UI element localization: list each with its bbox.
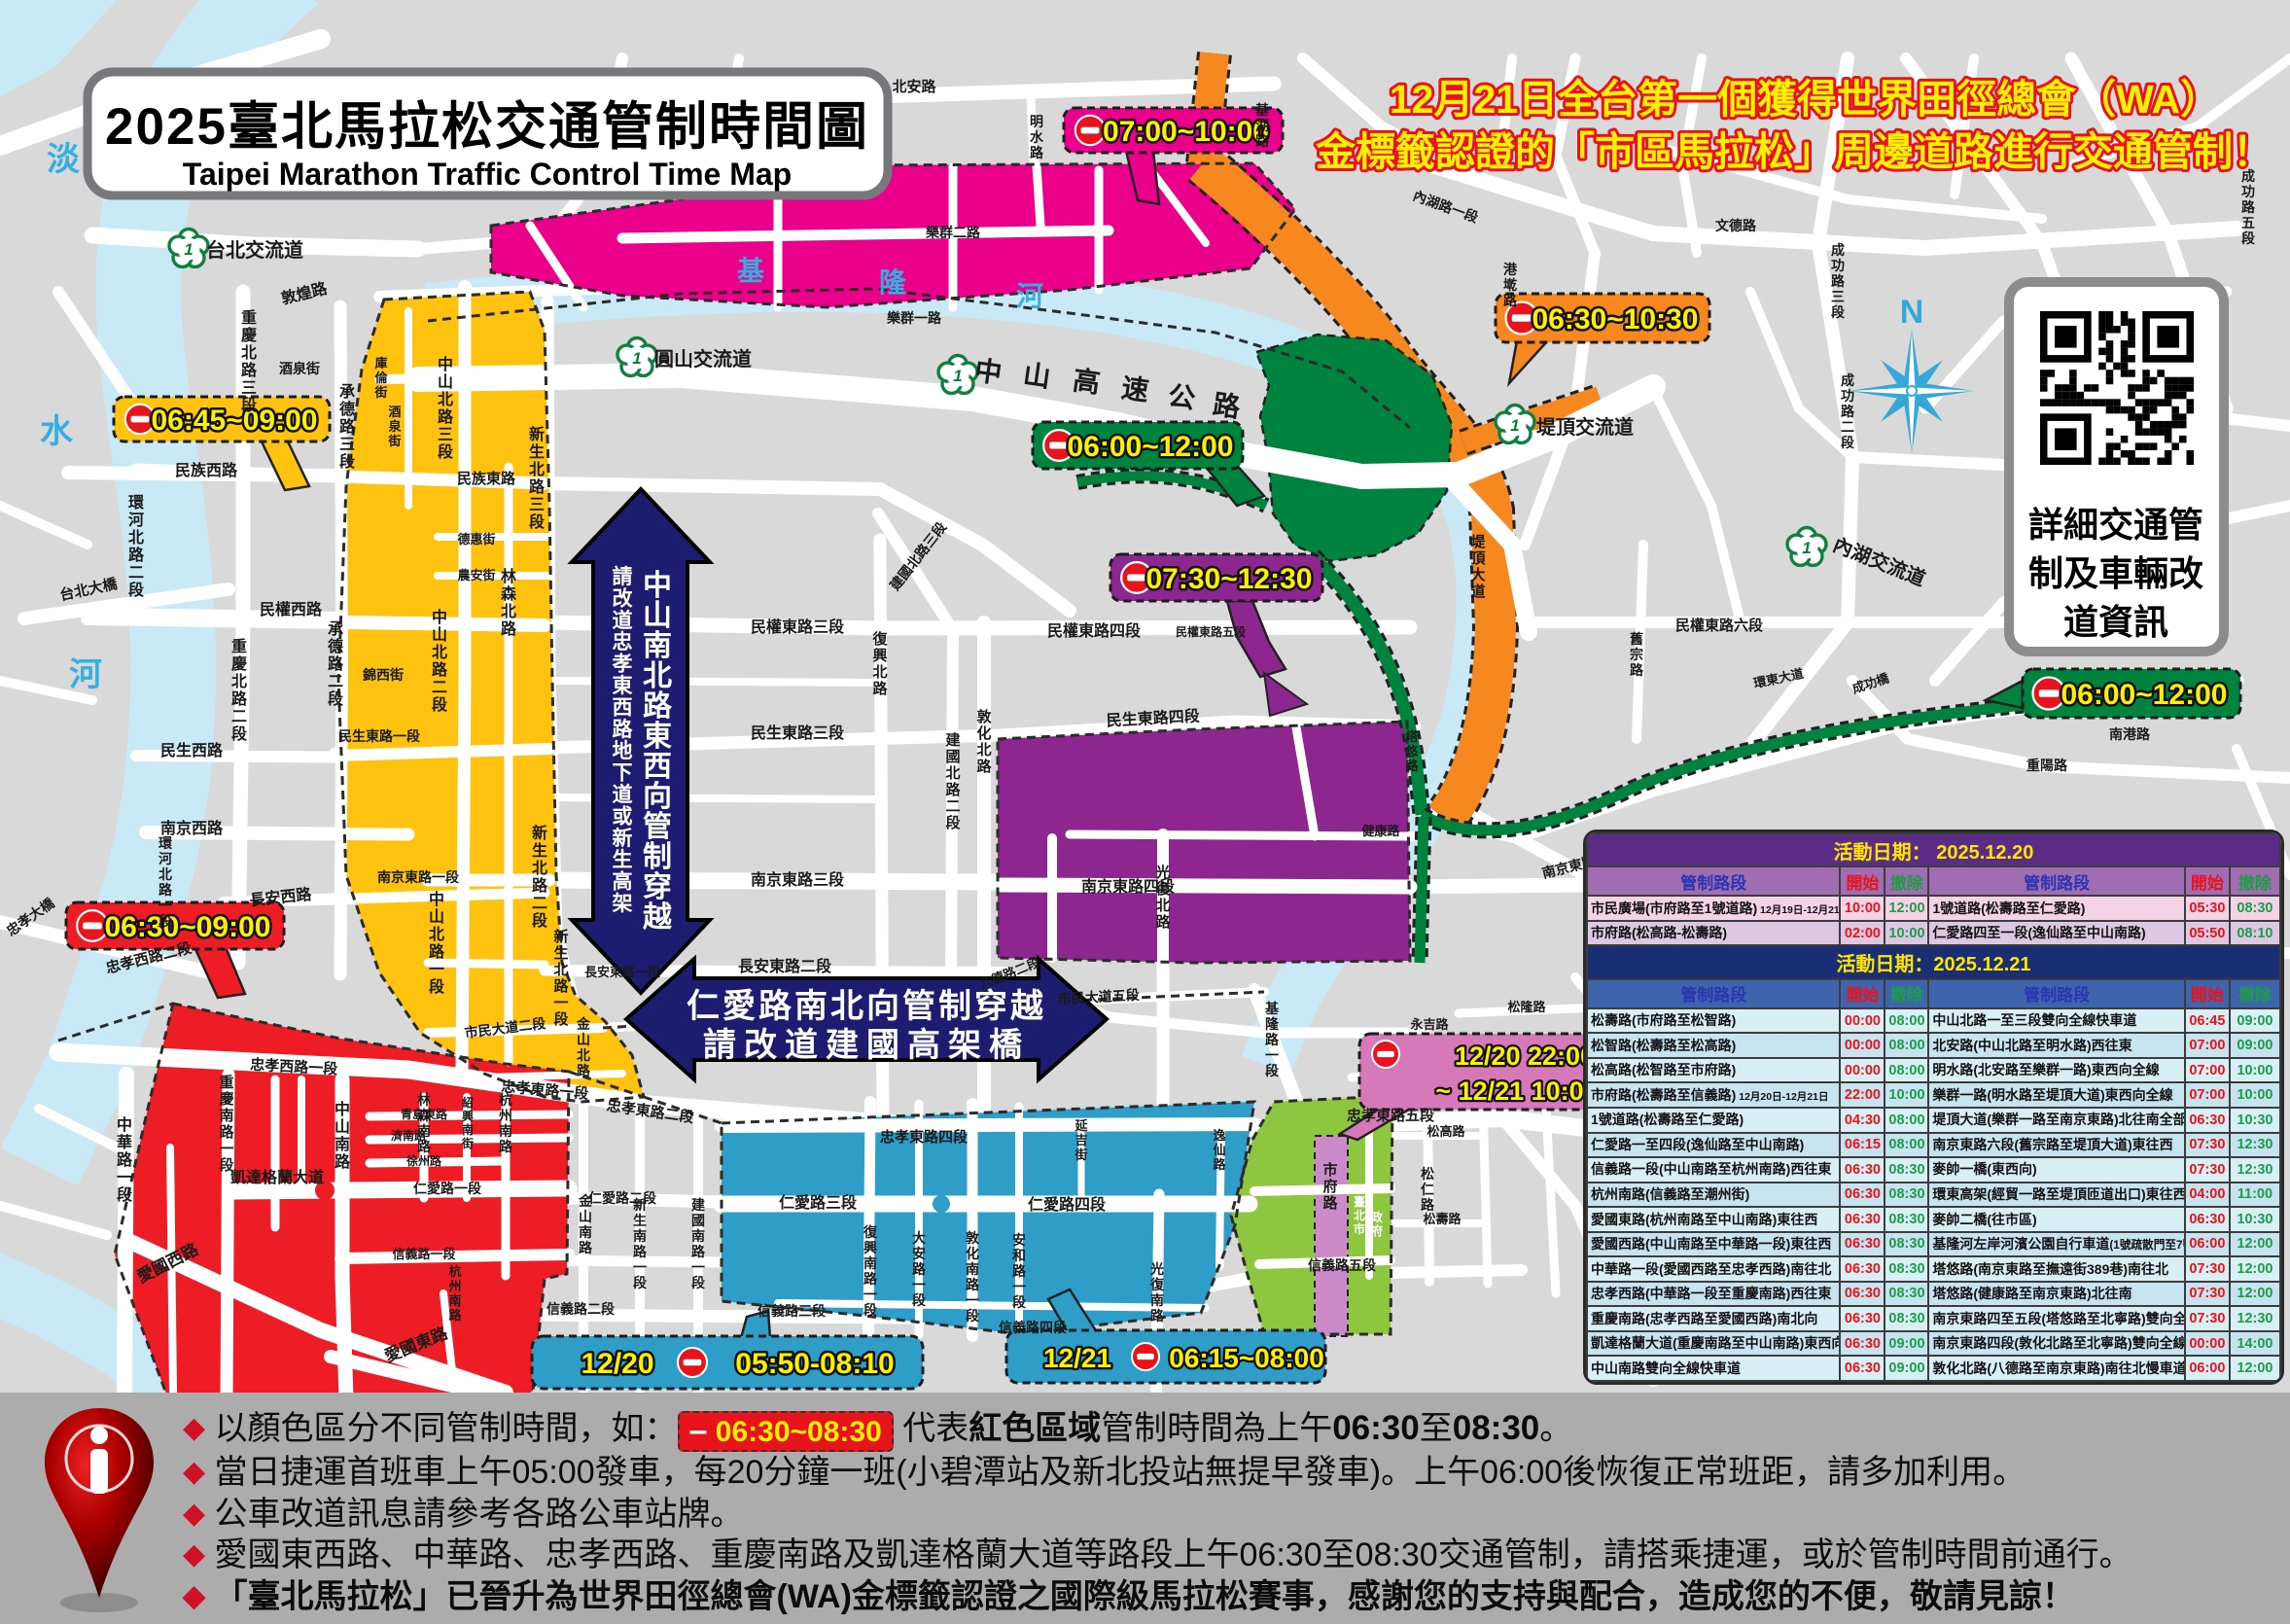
- svg-text:12/20 22:00: 12/20 22:00: [1455, 1041, 1595, 1071]
- svg-text:金山北路: 金山北路: [576, 1016, 591, 1078]
- svg-text:光復南路: 光復南路: [1149, 1261, 1165, 1324]
- svg-text:新生北路三段: 新生北路三段: [529, 425, 546, 531]
- svg-text:復興南路一段: 復興南路一段: [863, 1224, 878, 1318]
- svg-text:新生北路一段: 新生北路一段: [553, 928, 569, 1028]
- svg-text:信義路三段: 信義路三段: [757, 1303, 826, 1319]
- svg-text:松仁路: 松仁路: [1421, 1166, 1435, 1213]
- svg-text:德惠街: 德惠街: [457, 532, 495, 547]
- svg-text:忠孝東路五段: 忠孝東路五段: [1347, 1107, 1434, 1124]
- svg-text:光復北路: 光復北路: [1154, 864, 1171, 931]
- svg-text:仁愛路四段: 仁愛路四段: [1028, 1195, 1107, 1214]
- svg-text:1: 1: [184, 240, 193, 259]
- svg-text:公: 公: [1166, 380, 1197, 414]
- svg-text:明水路: 明水路: [1030, 114, 1044, 160]
- svg-text:逸仙路: 逸仙路: [1213, 1128, 1226, 1172]
- svg-text:金標籤認證的「市區馬拉松」周邊道路進行交通管制！: 金標籤認證的「市區馬拉松」周邊道路進行交通管制！: [1315, 129, 2272, 174]
- svg-text:Taipei Marathon Traffic Contro: Taipei Marathon Traffic Control Time Map: [183, 157, 792, 192]
- svg-text:民族西路: 民族西路: [175, 461, 238, 479]
- svg-text:建國南路一段: 建國南路一段: [691, 1197, 706, 1290]
- svg-text:農安街: 農安街: [457, 568, 495, 583]
- svg-text:成功路三段: 成功路三段: [1831, 242, 1846, 320]
- svg-text:長安東路一段: 長安東路一段: [584, 965, 660, 979]
- svg-text:濟南路: 濟南路: [391, 1128, 427, 1143]
- svg-text:重陽路: 重陽路: [2026, 758, 2068, 773]
- svg-text:民生東路一段: 民生東路一段: [338, 728, 420, 744]
- svg-text:基湖路: 基湖路: [1255, 102, 1270, 149]
- svg-text:酒泉街: 酒泉街: [279, 361, 320, 376]
- svg-text:06:15~08:00: 06:15~08:00: [1169, 1343, 1324, 1373]
- svg-text:敦化南路一段: 敦化南路一段: [966, 1230, 980, 1324]
- svg-text:信義路五段: 信義路五段: [1308, 1257, 1376, 1273]
- svg-text:長安東路二段: 長安東路二段: [738, 957, 832, 975]
- svg-text:05:50-08:10: 05:50-08:10: [735, 1348, 894, 1380]
- svg-text:07:00~10:00: 07:00~10:00: [1103, 116, 1269, 148]
- svg-text:延吉街: 延吉街: [1074, 1118, 1088, 1162]
- svg-text:民權東路三段: 民權東路三段: [751, 618, 845, 636]
- svg-text:重慶北路二段: 重慶北路二段: [231, 637, 248, 743]
- svg-text:2025臺北馬拉松交通管制時間圖: 2025臺北馬拉松交通管制時間圖: [105, 98, 869, 156]
- svg-text:環河北路一段: 環河北路一段: [159, 835, 173, 929]
- svg-text:松隆路: 松隆路: [1507, 1000, 1546, 1014]
- svg-text:隆: 隆: [879, 267, 907, 298]
- svg-text:塔悠路: 塔悠路: [1404, 729, 1419, 773]
- svg-text:建國北路二段: 建國北路二段: [945, 731, 961, 831]
- svg-text:仁愛路三段: 仁愛路三段: [779, 1193, 858, 1212]
- svg-text:仁愛路二段: 仁愛路二段: [588, 1190, 656, 1206]
- svg-text:中山南路: 中山南路: [335, 1100, 351, 1171]
- svg-text:制及車輛改: 制及車輛改: [2028, 553, 2203, 593]
- svg-text:民權東路五段: 民權東路五段: [1176, 624, 1247, 639]
- svg-text:臺北市: 臺北市: [1354, 1194, 1365, 1236]
- svg-text:松壽路: 松壽路: [1423, 1212, 1462, 1226]
- svg-text:圓山交流道: 圓山交流道: [654, 347, 752, 371]
- svg-text:舊宗路: 舊宗路: [1630, 631, 1644, 678]
- svg-text:1: 1: [1510, 416, 1519, 435]
- svg-text:民族東路: 民族東路: [457, 470, 516, 487]
- svg-text:大安路一段: 大安路一段: [912, 1230, 927, 1308]
- svg-text:重慶北路三段: 重慶北路三段: [241, 308, 258, 414]
- svg-text:成功路五段: 成功路五段: [2241, 168, 2256, 246]
- svg-text:市府路: 市府路: [1322, 1161, 1338, 1212]
- svg-text:基隆路一段: 基隆路一段: [1265, 1001, 1280, 1078]
- svg-text:堤頂交流道: 堤頂交流道: [1536, 415, 1634, 439]
- svg-text:文德路: 文德路: [1715, 218, 1757, 233]
- svg-text:06:30~10:30: 06:30~10:30: [1533, 303, 1699, 335]
- svg-text:詳細交通管: 詳細交通管: [2028, 505, 2203, 545]
- svg-text:1: 1: [1802, 539, 1811, 557]
- svg-text:仁愛路南北向管制穿越: 仁愛路南北向管制穿越: [687, 988, 1046, 1025]
- svg-text:忠孝東路四段: 忠孝東路四段: [880, 1128, 968, 1146]
- svg-text:樂群一路: 樂群一路: [886, 310, 942, 326]
- svg-text:南港路: 南港路: [2109, 726, 2151, 742]
- svg-text:12/20: 12/20: [581, 1348, 653, 1380]
- svg-text:河: 河: [69, 656, 102, 693]
- svg-text:北安路: 北安路: [892, 78, 936, 95]
- svg-text:徐州路: 徐州路: [405, 1153, 442, 1168]
- svg-text:山: 山: [1021, 359, 1052, 393]
- svg-text:12/21: 12/21: [1043, 1343, 1111, 1373]
- svg-text:敦化北路: 敦化北路: [976, 708, 992, 775]
- svg-text:青島東路: 青島東路: [401, 1107, 448, 1121]
- svg-text:松高路: 松高路: [1427, 1124, 1465, 1139]
- svg-text:台北交流道: 台北交流道: [206, 238, 303, 262]
- svg-text:民權西路: 民權西路: [260, 600, 323, 618]
- svg-text:N: N: [1900, 294, 1924, 331]
- svg-text:信義路二段: 信義路二段: [546, 1301, 615, 1317]
- svg-text:堤頂大道: 堤頂大道: [1470, 534, 1486, 600]
- svg-text:信義路四段: 信義路四段: [999, 1320, 1067, 1335]
- svg-text:南京東路四段: 南京東路四段: [1081, 877, 1176, 896]
- svg-text:健康路: 健康路: [1361, 824, 1400, 838]
- svg-text:南京東路一段: 南京東路一段: [377, 869, 459, 885]
- svg-text:錦西街: 錦西街: [363, 667, 404, 683]
- svg-text:中山北路二段: 中山北路二段: [432, 608, 448, 714]
- svg-text:杭州南路: 杭州南路: [447, 1264, 462, 1323]
- svg-text:06:00~12:00: 06:00~12:00: [2061, 679, 2228, 711]
- svg-text:06:30~09:00: 06:30~09:00: [105, 911, 271, 943]
- svg-text:道資訊: 道資訊: [2063, 602, 2168, 642]
- svg-text:1: 1: [953, 367, 962, 385]
- svg-text:高: 高: [1071, 365, 1102, 399]
- svg-text:成功路二段: 成功路二段: [1841, 372, 1855, 450]
- svg-text:復興北路: 復興北路: [871, 630, 888, 697]
- svg-text:基: 基: [737, 256, 764, 286]
- svg-text:林森南路: 林森南路: [417, 1092, 432, 1154]
- svg-text:政府: 政府: [1371, 1210, 1384, 1238]
- svg-text:水: 水: [40, 413, 74, 450]
- svg-text:請改道建國高架橋: 請改道建國高架橋: [703, 1026, 1030, 1064]
- svg-text:06:45~09:00: 06:45~09:00: [152, 405, 318, 437]
- svg-text:南京西路: 南京西路: [160, 819, 224, 837]
- svg-text:請改道忠孝東西路地下道或新生高架: 請改道忠孝東西路地下道或新生高架: [613, 565, 634, 915]
- svg-text:中華路一段: 中華路一段: [117, 1115, 133, 1204]
- svg-text:酒泉街: 酒泉街: [387, 405, 402, 448]
- svg-text:07:30~12:30: 07:30~12:30: [1146, 563, 1313, 595]
- svg-text:12月21日全台第一個獲得世界田徑總會（WA）: 12月21日全台第一個獲得世界田徑總會（WA）: [1390, 77, 2220, 122]
- svg-text:庫倫街: 庫倫街: [373, 356, 388, 400]
- svg-text:杭州南路: 杭州南路: [498, 1092, 513, 1154]
- svg-text:樂群二路: 樂群二路: [925, 225, 981, 240]
- svg-text:中: 中: [972, 355, 1004, 389]
- svg-text:河: 河: [1016, 281, 1043, 311]
- svg-text:南京東路三段: 南京東路三段: [751, 870, 845, 889]
- svg-text:永吉路: 永吉路: [1409, 1017, 1449, 1032]
- svg-text:中山南北路東西向管制穿越: 中山南北路東西向管制穿越: [643, 570, 673, 934]
- svg-text:中山北路一段: 中山北路一段: [429, 890, 445, 996]
- svg-text:路: 路: [1211, 389, 1243, 423]
- svg-text:中山北路三段: 中山北路三段: [438, 355, 454, 461]
- svg-text:港墘路: 港墘路: [1503, 262, 1518, 308]
- svg-text:仁愛路一段: 仁愛路一段: [413, 1181, 481, 1196]
- svg-text:民生西路: 民生西路: [160, 741, 224, 759]
- svg-text:速: 速: [1119, 372, 1150, 406]
- svg-text:新生南路一段: 新生南路一段: [633, 1197, 648, 1290]
- svg-text:06:00~12:00: 06:00~12:00: [1068, 431, 1234, 463]
- svg-text:民權東路四段: 民權東路四段: [1047, 621, 1142, 640]
- svg-text:~ 12/21 10:00: ~ 12/21 10:00: [1435, 1077, 1598, 1106]
- svg-text:民生東路三段: 民生東路三段: [751, 724, 845, 742]
- svg-text:紹興南街: 紹興南街: [461, 1095, 474, 1150]
- svg-text:新生北路二段: 新生北路二段: [532, 824, 548, 930]
- svg-text:林森北路: 林森北路: [501, 567, 517, 638]
- svg-text:民權東路六段: 民權東路六段: [1675, 617, 1763, 634]
- svg-text:承德路三段: 承德路三段: [339, 383, 356, 471]
- svg-text:1: 1: [632, 349, 641, 368]
- svg-text:重慶南路一段: 重慶南路一段: [219, 1074, 234, 1174]
- svg-text:淡: 淡: [47, 141, 81, 178]
- svg-text:安和路一段: 安和路一段: [1012, 1232, 1027, 1310]
- svg-text:承德路二段: 承德路二段: [328, 620, 344, 708]
- svg-text:凱達格蘭大道: 凱達格蘭大道: [230, 1168, 324, 1186]
- svg-text:信義路一段: 信義路一段: [392, 1247, 455, 1261]
